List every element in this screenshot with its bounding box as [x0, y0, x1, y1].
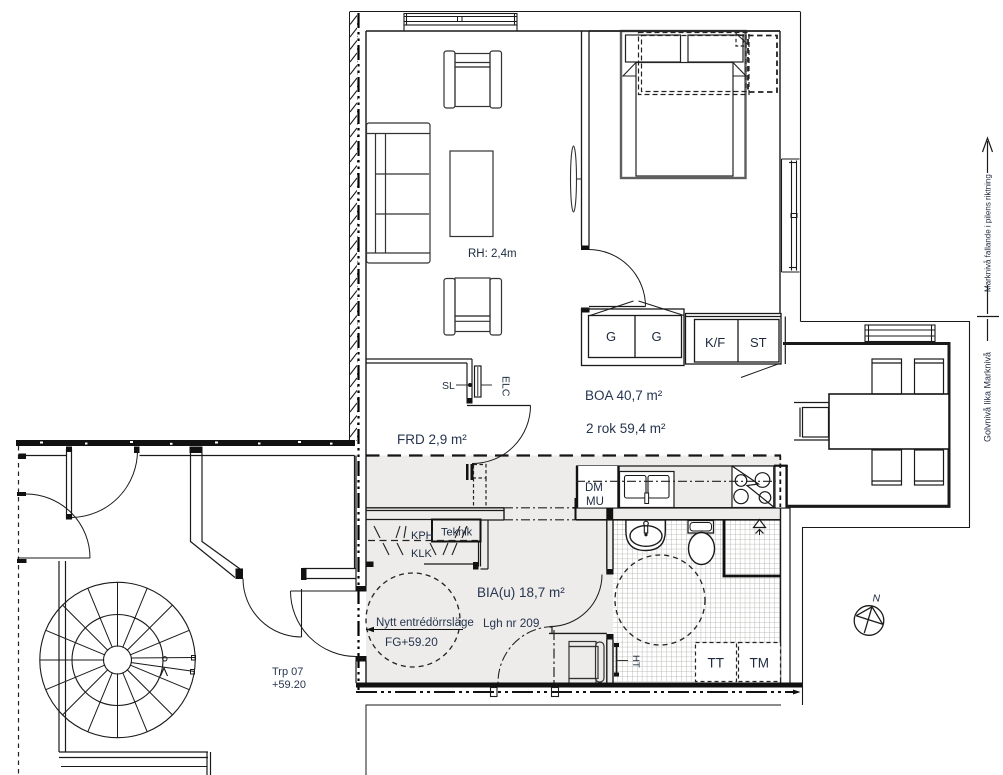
- svg-text:Trp 07: Trp 07: [272, 666, 303, 678]
- svg-text:2 rok 59,4 m²: 2 rok 59,4 m²: [586, 421, 666, 436]
- svg-text:TT: TT: [708, 656, 725, 671]
- svg-text:MU: MU: [586, 496, 604, 508]
- svg-text:BIA(u) 18,7 m²: BIA(u) 18,7 m²: [477, 585, 565, 600]
- svg-text:ST: ST: [750, 335, 767, 350]
- svg-text:FG+59.20: FG+59.20: [385, 635, 438, 649]
- svg-text:K/F: K/F: [705, 335, 725, 350]
- svg-text:RH: 2,4m: RH: 2,4m: [468, 248, 517, 260]
- svg-text:DM: DM: [585, 482, 603, 494]
- svg-text:ELC: ELC: [500, 376, 512, 397]
- svg-text:N: N: [873, 593, 881, 605]
- svg-text:SL: SL: [442, 380, 455, 392]
- svg-text:G: G: [652, 329, 662, 344]
- svg-text:BOA 40,7 m²: BOA 40,7 m²: [585, 388, 663, 403]
- svg-text:Marknivå fallande i pilens rik: Marknivå fallande i pilens riktning: [984, 174, 993, 292]
- svg-text:HT: HT: [630, 655, 641, 668]
- svg-text:G: G: [606, 329, 616, 344]
- svg-text:TM: TM: [750, 656, 770, 671]
- svg-text:Golvnivå lika Marknivå: Golvnivå lika Marknivå: [983, 352, 993, 442]
- svg-text:Lgh nr 209: Lgh nr 209: [483, 616, 539, 630]
- svg-text:+59.20: +59.20: [272, 679, 306, 691]
- svg-text:KLK: KLK: [411, 548, 432, 560]
- svg-text:KPH: KPH: [411, 530, 434, 542]
- svg-text:Nytt entrédörrsläge: Nytt entrédörrsläge: [376, 617, 474, 629]
- svg-text:FRD 2,9 m²: FRD 2,9 m²: [397, 432, 467, 447]
